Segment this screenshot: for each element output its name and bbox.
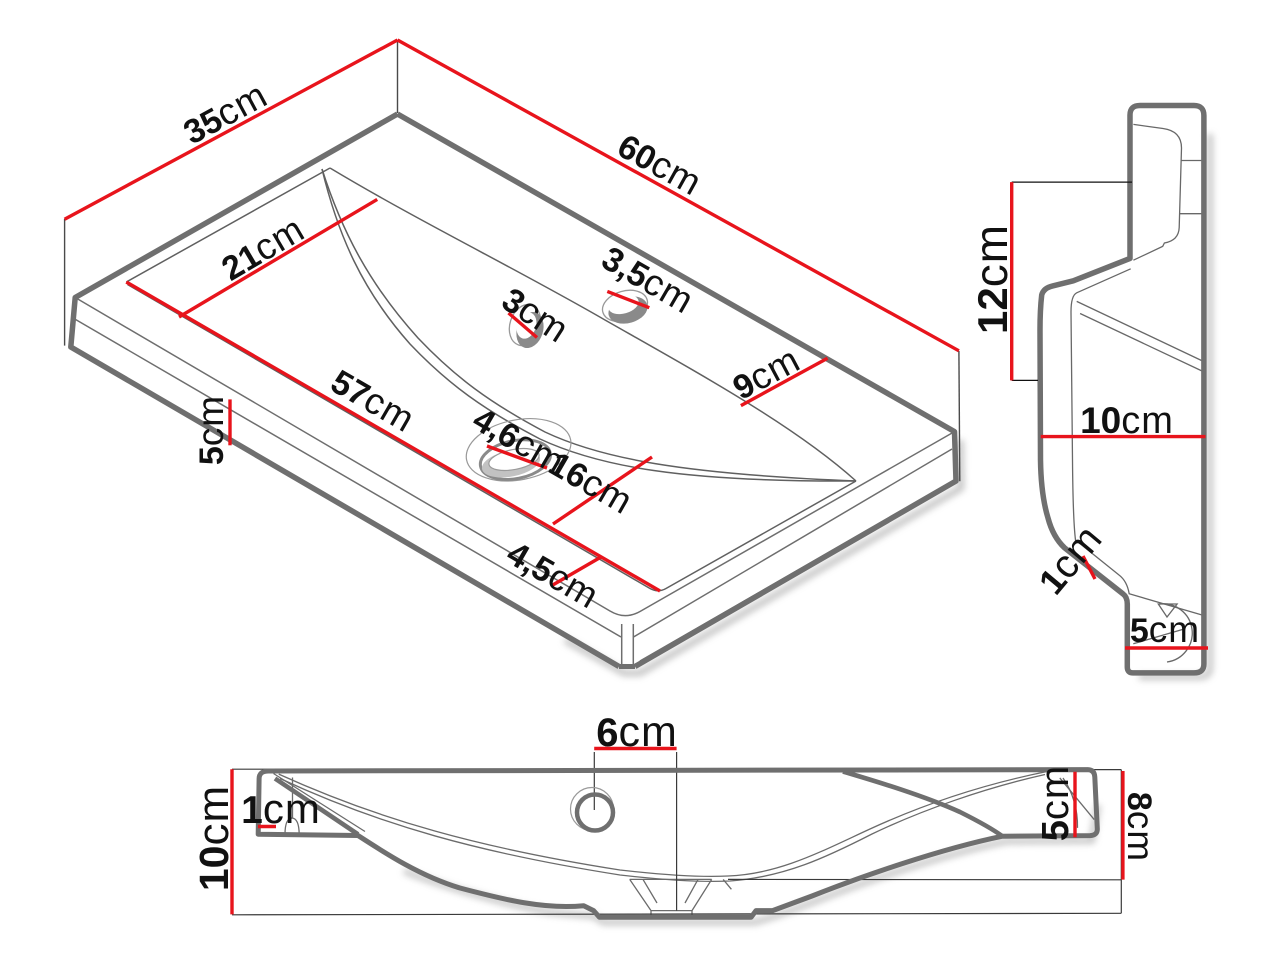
svg-text:1cm: 1cm: [241, 785, 321, 832]
svg-text:1cm: 1cm: [1029, 517, 1111, 603]
svg-text:5cm: 5cm: [190, 395, 231, 465]
svg-text:10cm: 10cm: [1080, 400, 1174, 442]
svg-text:5cm: 5cm: [1130, 609, 1200, 650]
svg-text:10cm: 10cm: [189, 785, 238, 891]
svg-text:21cm: 21cm: [214, 208, 312, 289]
svg-text:8cm: 8cm: [1120, 792, 1161, 862]
svg-text:6cm: 6cm: [596, 708, 678, 756]
svg-text:12cm: 12cm: [965, 224, 1017, 334]
svg-text:5cm: 5cm: [1033, 765, 1077, 841]
svg-text:35cm: 35cm: [176, 74, 274, 152]
svg-text:60cm: 60cm: [611, 125, 709, 204]
